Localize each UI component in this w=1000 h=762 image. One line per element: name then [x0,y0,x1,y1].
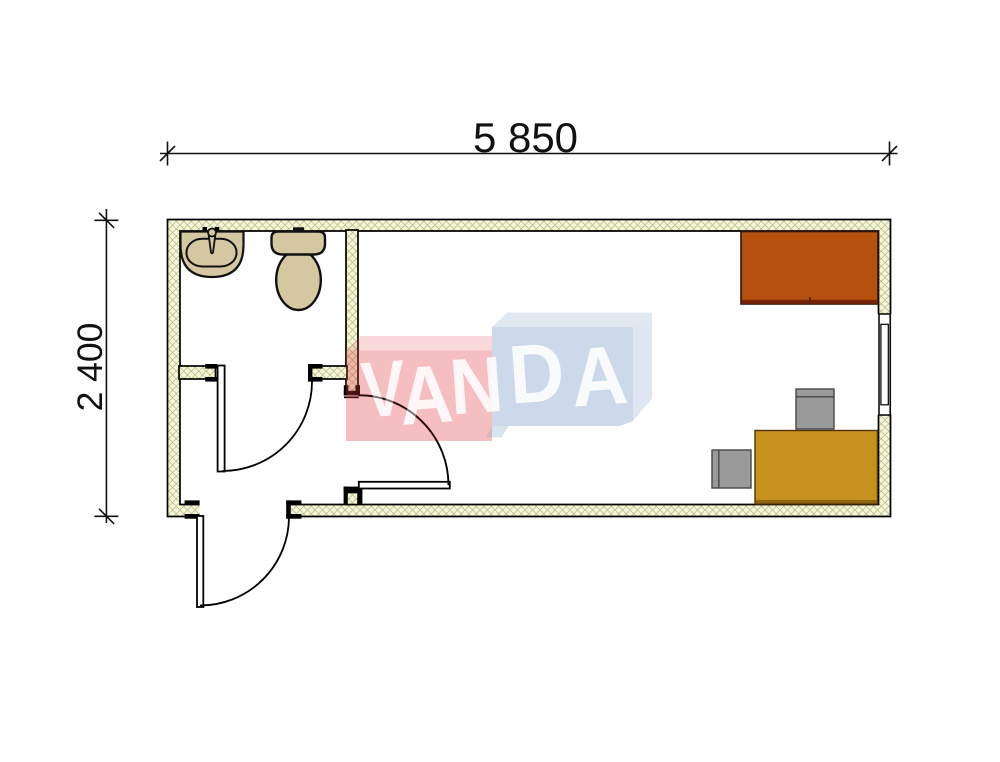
svg-text:5 850: 5 850 [473,114,578,161]
svg-text:A: A [396,347,456,443]
svg-text:D: D [506,325,567,421]
svg-text:N: N [447,341,506,433]
svg-text:A: A [568,329,631,425]
svg-text:2 400: 2 400 [70,323,110,412]
